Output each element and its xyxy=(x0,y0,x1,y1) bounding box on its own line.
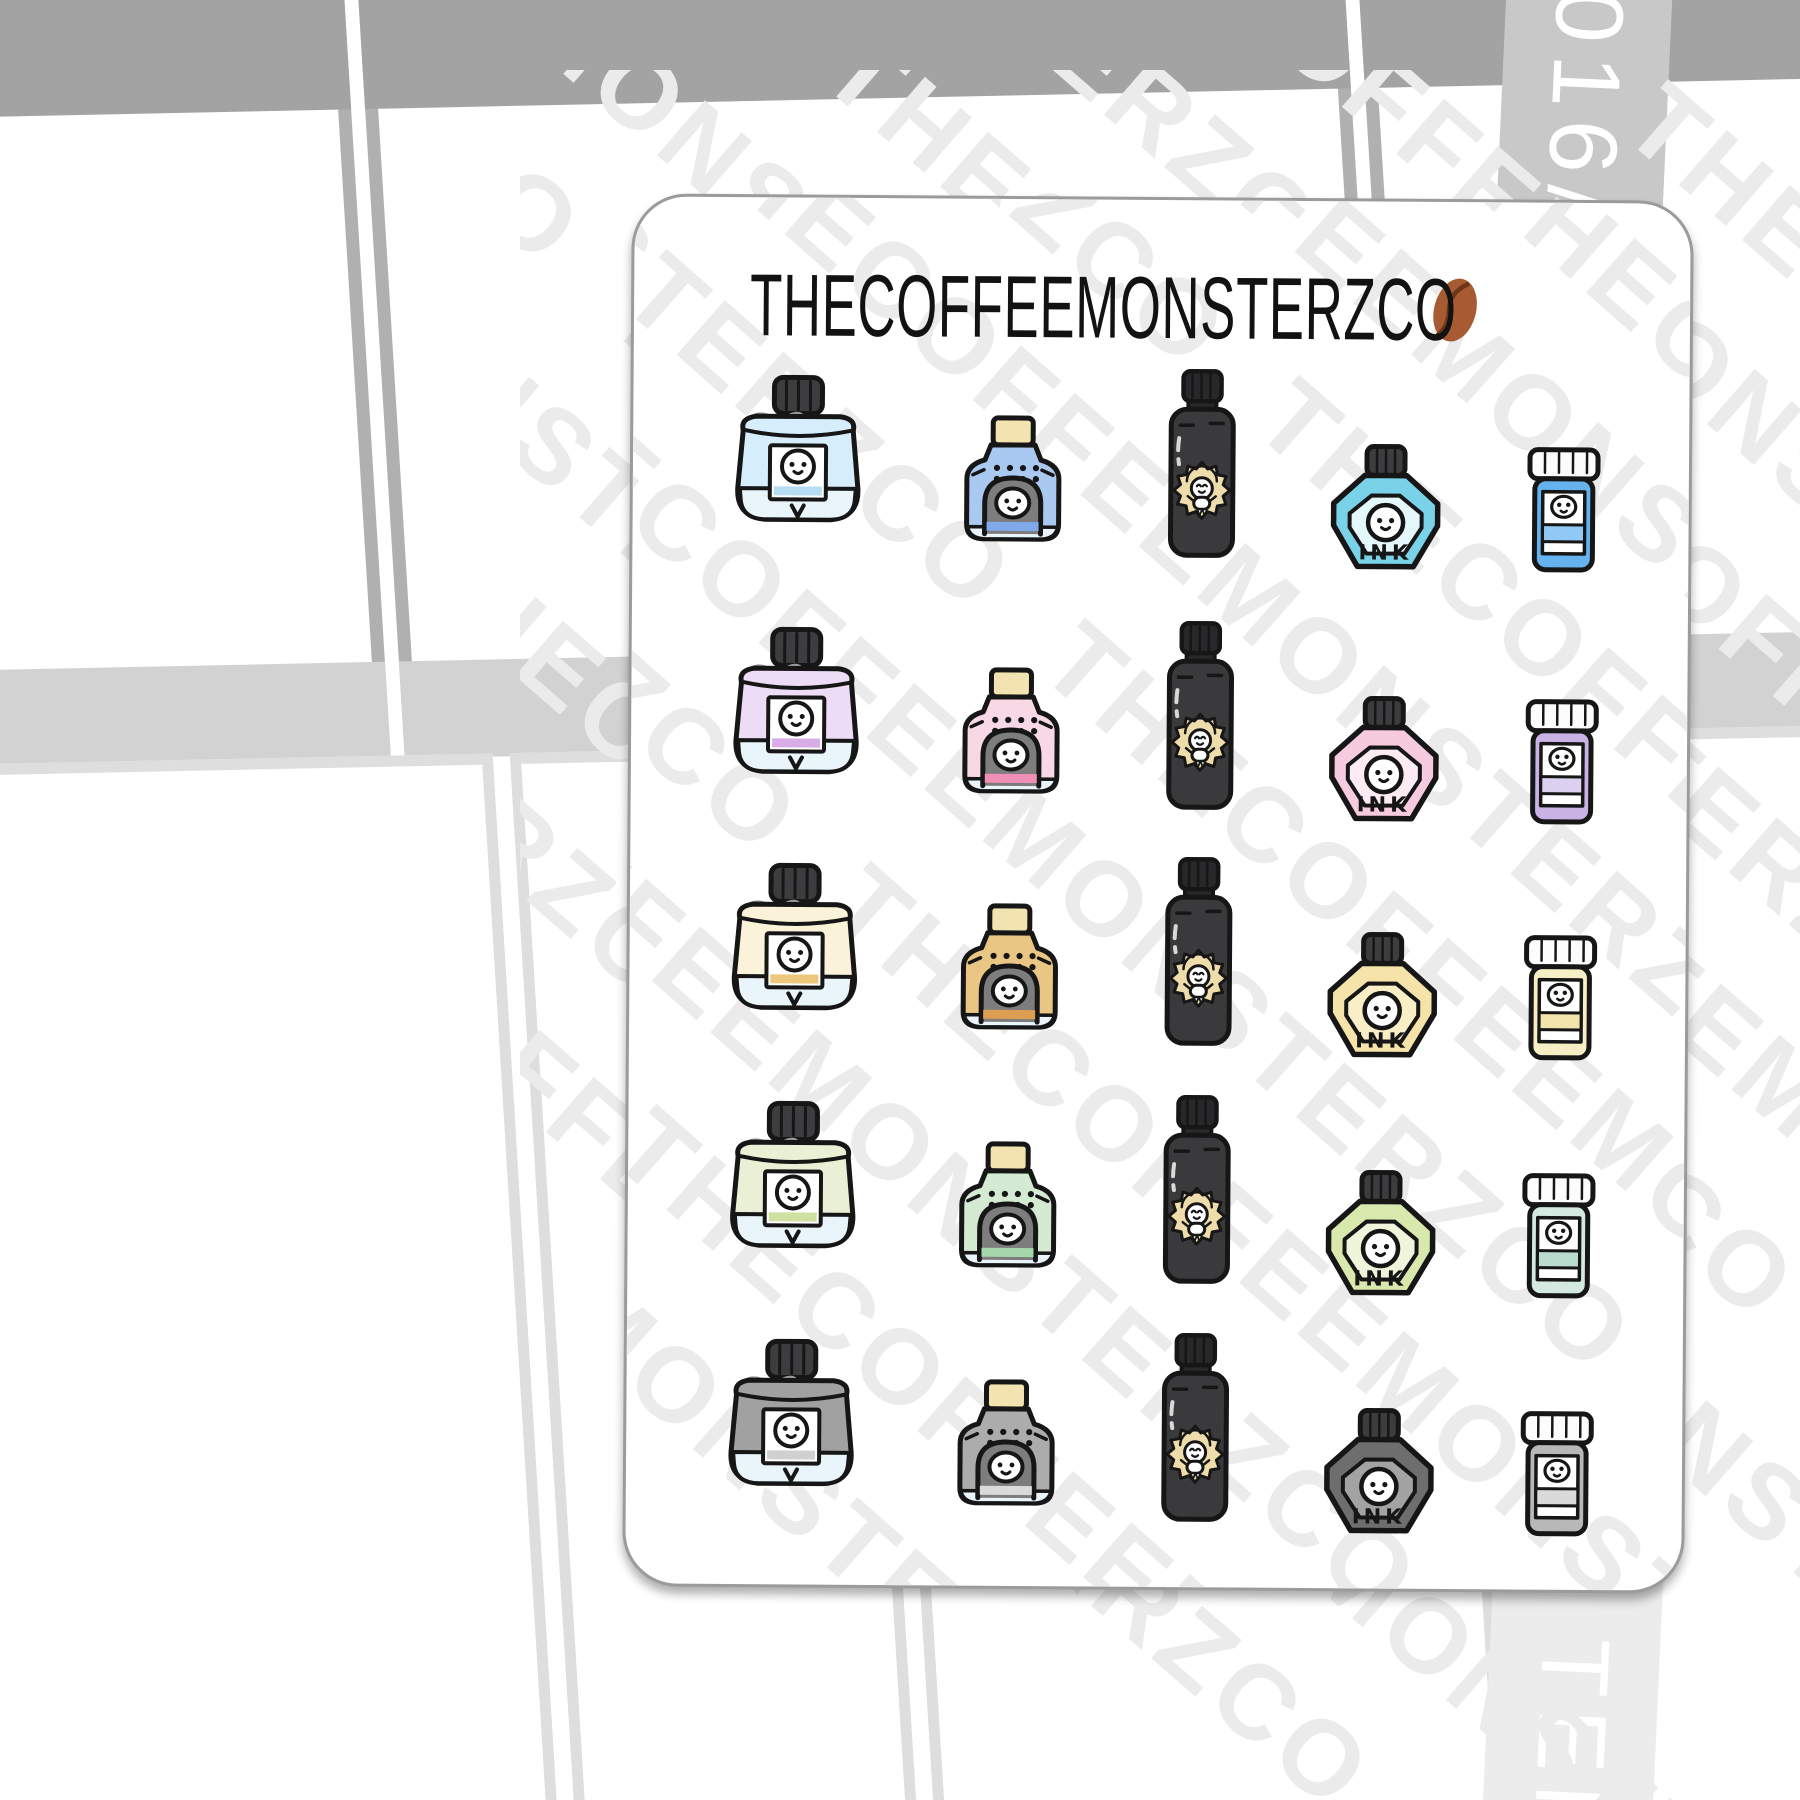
small-ink-jar-sticker xyxy=(1477,1146,1640,1275)
small-ink-jar-sticker xyxy=(1475,1384,1638,1513)
squat-dotted-ink-bottle-sticker xyxy=(910,414,1115,545)
tall-slim-ink-bottle-sticker xyxy=(1112,606,1288,799)
brand-logo: THECOFFEEMONSTERZCO xyxy=(586,256,1643,359)
classic-wide-ink-bottle-sticker xyxy=(679,1099,906,1271)
brand-name: THECOFFEEMONSTERZCO xyxy=(749,254,1456,361)
hexagon-ink-bottle-sticker xyxy=(1285,905,1480,1036)
classic-wide-ink-bottle-sticker xyxy=(684,373,911,545)
squat-dotted-ink-bottle-sticker xyxy=(903,1378,1108,1509)
sticker-row-yellow xyxy=(681,795,1643,1038)
squat-dotted-ink-bottle-sticker xyxy=(908,666,1113,797)
hexagon-ink-bottle-sticker xyxy=(1283,1143,1478,1274)
planner-column xyxy=(0,753,570,1800)
tall-slim-ink-bottle-sticker xyxy=(1107,1318,1283,1511)
small-ink-jar-sticker xyxy=(1479,908,1642,1037)
sticker-row-pink xyxy=(683,543,1645,802)
tall-slim-ink-bottle-sticker xyxy=(1109,1080,1285,1273)
product-photo: 2016/2 TEMBE THECOFFEEMONSTERZCOTHECOFFE… xyxy=(0,0,1800,1800)
squat-dotted-ink-bottle-sticker xyxy=(905,1140,1110,1271)
sticker-row-green xyxy=(679,1031,1641,1276)
sticker-sheet: THECOFFEEMONSTERZCOTHECOFFEEMONSTERZCO T… xyxy=(622,193,1694,1593)
classic-wide-ink-bottle-sticker xyxy=(681,861,908,1033)
hexagon-ink-bottle-sticker xyxy=(1286,669,1481,800)
sheet-content: THECOFFEEMONSTERZCO xyxy=(625,196,1691,1590)
tall-slim-ink-bottle-sticker xyxy=(1114,354,1290,547)
squat-dotted-ink-bottle-sticker xyxy=(907,902,1112,1033)
sticker-grid xyxy=(677,347,1645,1565)
hexagon-ink-bottle-sticker xyxy=(1288,417,1483,548)
classic-wide-ink-bottle-sticker xyxy=(683,625,910,797)
small-ink-jar-sticker xyxy=(1482,420,1645,549)
hexagon-ink-bottle-sticker xyxy=(1281,1381,1476,1512)
classic-wide-ink-bottle-sticker xyxy=(678,1337,905,1509)
tall-slim-ink-bottle-sticker xyxy=(1111,842,1287,1035)
small-ink-jar-sticker xyxy=(1480,672,1643,801)
planner-column xyxy=(0,0,391,767)
sticker-row-gray xyxy=(678,1269,1640,1514)
sticker-row-blue xyxy=(684,347,1645,550)
brand-name-wrap: THECOFFEEMONSTERZCO xyxy=(749,257,1405,358)
